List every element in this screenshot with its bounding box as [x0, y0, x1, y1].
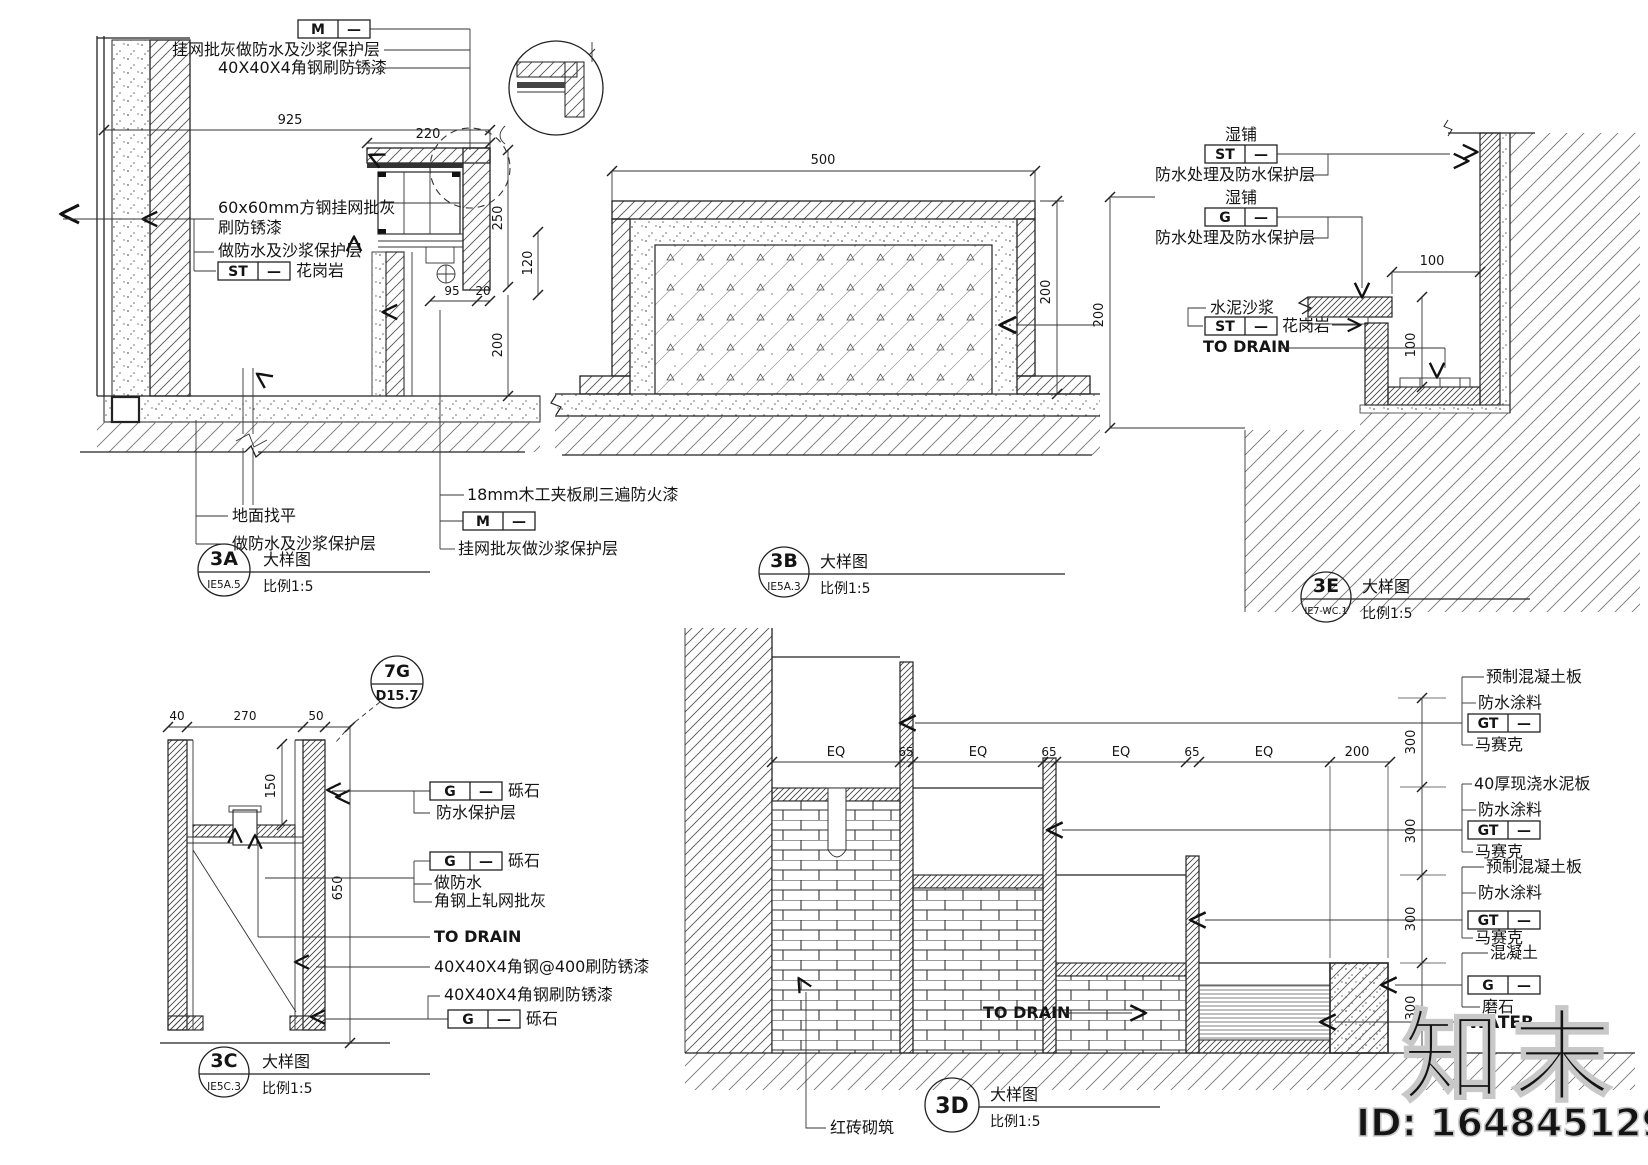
label-rust-paint: 刷防锈漆: [218, 218, 282, 237]
material-tag-st-3e1: ST—: [1205, 145, 1277, 163]
label-waterproof-mortar: 做防水及沙浆保护层: [218, 241, 362, 260]
dim-50: 50: [308, 709, 323, 723]
detail-scale-3c: 比例1:5: [262, 1081, 313, 1097]
label-coating-3: 防水涂料: [1478, 883, 1542, 902]
svg-text:G: G: [1219, 210, 1231, 226]
wall-gutter-section-3e: [1245, 120, 1640, 612]
label-waterproof-2: 防水处理及防水保护层: [1155, 228, 1315, 247]
svg-text:M: M: [476, 514, 490, 530]
svg-text:G: G: [462, 1012, 474, 1028]
detail-title-3e: 大样图: [1362, 577, 1410, 596]
svg-text:GT: GT: [1478, 716, 1499, 732]
label-cast-slab: 40厚现浇水泥板: [1474, 774, 1590, 793]
label-do-waterproof: 做防水: [434, 873, 482, 892]
svg-text:—: —: [1517, 716, 1531, 732]
detail-title-3b: 大样图: [820, 552, 868, 571]
svg-text:—: —: [1517, 978, 1531, 994]
dim-200-3e: 200: [1092, 303, 1107, 328]
svg-text:—: —: [267, 264, 281, 280]
detail-tag-3a: 3A IE5A.5: [198, 544, 250, 596]
label-coating-1: 防水涂料: [1478, 693, 1542, 712]
label-angle-steel: 40X40X4角钢刷防锈漆: [444, 985, 613, 1004]
detail-scale-3b: 比例1:5: [820, 581, 871, 597]
label-wp-protect: 防水保护层: [436, 803, 516, 822]
dims-3c: 40 270 50 150 650: [163, 709, 355, 1043]
label-to-drain-3c: TO DRAIN: [434, 927, 521, 946]
label-angle-steel-paint: 40X40X4角钢刷防锈漆: [218, 58, 387, 77]
svg-text:G: G: [1482, 978, 1494, 994]
dim-65-2: 65: [1041, 745, 1056, 759]
svg-text:—: —: [512, 514, 526, 530]
dim-500: 500: [811, 153, 836, 168]
svg-text:GT: GT: [1478, 823, 1499, 839]
detail-3a: 925 220 250 120 200 95 20 M— 挂网批灰做防水及沙浆保…: [61, 20, 679, 596]
label-to-drain-3e: TO DRAIN: [1203, 337, 1290, 356]
label-wet-lay-1: 湿铺: [1225, 125, 1257, 144]
cad-detail-sheet: 925 220 250 120 200 95 20 M— 挂网批灰做防水及沙浆保…: [0, 0, 1648, 1165]
material-tag-st-3e2: ST—: [1205, 317, 1277, 335]
svg-text:—: —: [1517, 913, 1531, 929]
label-square-steel: 60x60mm方钢挂网批灰: [218, 198, 395, 217]
detail-ref-3e: IE7-WC.1: [1305, 606, 1348, 617]
label-coating-2: 防水涂料: [1478, 800, 1542, 819]
drawing-canvas: 925 220 250 120 200 95 20 M— 挂网批灰做防水及沙浆保…: [0, 0, 1648, 1165]
label-precast-2: 预制混凝土板: [1486, 857, 1582, 876]
detail-3e: 100 100 200 湿铺 ST— 防水处理及防水保护层 湿铺 G— 防水处理…: [1092, 120, 1640, 622]
dim-200-3b: 200: [1039, 280, 1054, 305]
dim-300-3: 300: [1404, 907, 1419, 932]
svg-text:—: —: [1517, 823, 1531, 839]
drain-pipe-3d: [828, 788, 846, 857]
label-mosaic-1: 马赛克: [1475, 735, 1523, 754]
dim-95: 95: [444, 284, 459, 298]
svg-text:ST: ST: [1215, 147, 1235, 163]
label-mesh-plaster-waterproof: 挂网批灰做防水及沙浆保护层: [172, 40, 380, 59]
material-tag-gt-2: GT—: [1468, 821, 1540, 839]
detail-ref-3c: IE5C.3: [207, 1081, 241, 1093]
detail-code-3c: 3C: [210, 1050, 237, 1072]
svg-text:—: —: [1254, 319, 1268, 335]
svg-text:ST: ST: [228, 264, 248, 280]
label-gravel-3: 砾石: [526, 1009, 558, 1028]
ref-code-7g: 7G: [384, 662, 410, 682]
detail-scale-3e: 比例1:5: [1362, 606, 1413, 622]
dim-40: 40: [169, 709, 184, 723]
label-to-drain-3d: TO DRAIN: [983, 1003, 1070, 1022]
svg-text:M: M: [311, 22, 325, 38]
dim-220: 220: [416, 127, 441, 142]
dim-20: 20: [475, 284, 490, 298]
label-angle-400: 40X40X4角钢@400刷防锈漆: [434, 957, 649, 976]
label-gravel-2: 砾石: [508, 851, 540, 870]
dim-650: 650: [331, 876, 346, 901]
label-gravel-1: 砾石: [508, 781, 540, 800]
label-floor-leveling: 地面找平: [232, 506, 296, 525]
dim-eq-4: EQ: [1255, 745, 1273, 760]
dim-150: 150: [264, 774, 279, 799]
material-tag-g-3e: G—: [1205, 208, 1277, 226]
skirting-block: [112, 397, 139, 422]
detail-3b: 500 200 3B IE5A.3 大样图 比例1:5: [551, 153, 1100, 597]
label-wet-lay-2: 湿铺: [1225, 188, 1257, 207]
material-tag-st: ST—: [218, 262, 290, 280]
label-angle-mesh: 角钢上轧网批灰: [434, 891, 546, 910]
svg-text:—: —: [479, 854, 493, 870]
curb-section-3b: [551, 201, 1100, 455]
svg-text:ST: ST: [1215, 319, 1235, 335]
label-waterproof-1: 防水处理及防水保护层: [1155, 165, 1315, 184]
svg-text:GT: GT: [1478, 913, 1499, 929]
label-plywood-firepaint: 18mm木工夹板刷三遍防火漆: [467, 485, 679, 504]
detail-3c: 40 270 50 150 650 7G D15.7 G— 砾石 防水保护层 G…: [160, 656, 649, 1097]
dim-eq-3: EQ: [1112, 745, 1130, 760]
detail-title-3c: 大样图: [262, 1052, 310, 1071]
svg-text:—: —: [347, 22, 361, 38]
detail-title-3a: 大样图: [263, 550, 311, 569]
dim-120: 120: [521, 251, 536, 276]
detail-code-3e: 3E: [1313, 575, 1339, 597]
dim-925: 925: [278, 113, 303, 128]
material-tag-m: M—: [298, 20, 370, 38]
detail-scale-3d: 比例1:5: [990, 1114, 1041, 1130]
detail-tag-3b: 3B IE5A.3: [759, 547, 809, 597]
ref-sheet-7g: D15.7: [376, 689, 419, 704]
svg-text:—: —: [479, 784, 493, 800]
labels-3e: 湿铺 ST— 防水处理及防水保护层 湿铺 G— 防水处理及防水保护层 水泥沙浆 …: [1155, 125, 1450, 368]
detail-title-3d: 大样图: [990, 1085, 1038, 1104]
niche-section-3a: [367, 148, 490, 396]
label-cement-mortar: 水泥沙浆: [1210, 298, 1274, 317]
detail-tag-3c: 3C IE5C.3: [199, 1047, 249, 1097]
dim-65-1: 65: [898, 745, 913, 759]
dim-300-2: 300: [1404, 819, 1419, 844]
dim-200-3d: 200: [1345, 745, 1370, 760]
ref-bubble-7g: 7G D15.7: [371, 656, 423, 708]
material-tag-g-3c1: G—: [430, 782, 502, 800]
watermark-id: ID: 164845129: [1356, 1101, 1648, 1145]
dim-300-1: 300: [1404, 730, 1419, 755]
material-tag-gt-1: GT—: [1468, 714, 1540, 732]
label-mesh-plaster-protect: 挂网批灰做沙浆保护层: [458, 539, 618, 558]
label-precast-1: 预制混凝土板: [1486, 667, 1582, 686]
label-granite-3e: 花岗岩: [1282, 316, 1330, 335]
material-tag-g-3d: G—: [1468, 976, 1540, 994]
detail-code-3d: 3D: [935, 1094, 969, 1119]
label-concrete: 混凝土: [1490, 943, 1538, 962]
detail-ref-3b: IE5A.3: [767, 581, 800, 593]
dim-270: 270: [234, 709, 257, 723]
svg-text:G: G: [444, 854, 456, 870]
detail-code-3a: 3A: [210, 548, 238, 570]
dim-250: 250: [491, 206, 506, 231]
label-granite: 花岗岩: [296, 261, 344, 280]
dim-eq-2: EQ: [969, 745, 987, 760]
watermark-logo: 知末: [1402, 999, 1622, 1116]
svg-text:G: G: [444, 784, 456, 800]
dim-100h: 100: [1404, 333, 1419, 358]
svg-text:—: —: [497, 1012, 511, 1028]
detail-code-3b: 3B: [770, 550, 798, 572]
dim-eq-1: EQ: [827, 745, 845, 760]
material-tag-gt-3: GT—: [1468, 911, 1540, 929]
detail-scale-3a: 比例1:5: [263, 579, 314, 595]
detail-ref-3a: IE5A.5: [207, 579, 240, 591]
material-tag-m-2: M—: [463, 512, 535, 530]
label-red-brick: 红砖砌筑: [830, 1118, 894, 1137]
dim-200: 200: [491, 333, 506, 358]
material-tag-g-3c3: G—: [448, 1010, 520, 1028]
dim-65-3: 65: [1184, 745, 1199, 759]
dim-100w: 100: [1420, 254, 1445, 269]
material-tag-g-3c2: G—: [430, 852, 502, 870]
svg-text:—: —: [1254, 210, 1268, 226]
svg-text:—: —: [1254, 147, 1268, 163]
